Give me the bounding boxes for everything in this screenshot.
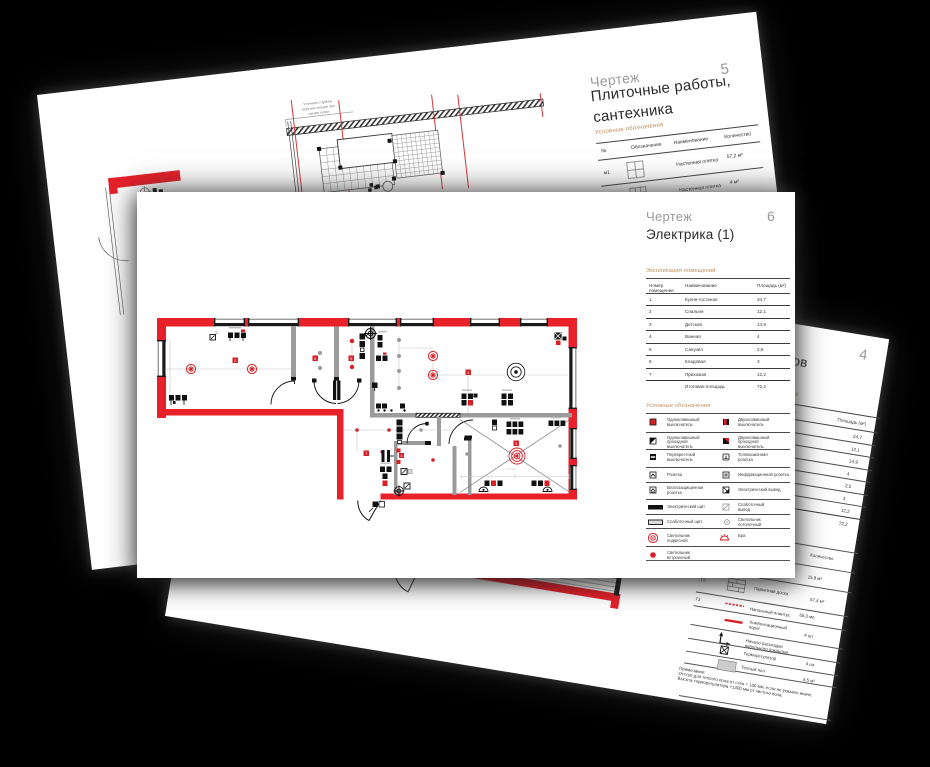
svg-text:4: 4 xyxy=(401,454,403,458)
